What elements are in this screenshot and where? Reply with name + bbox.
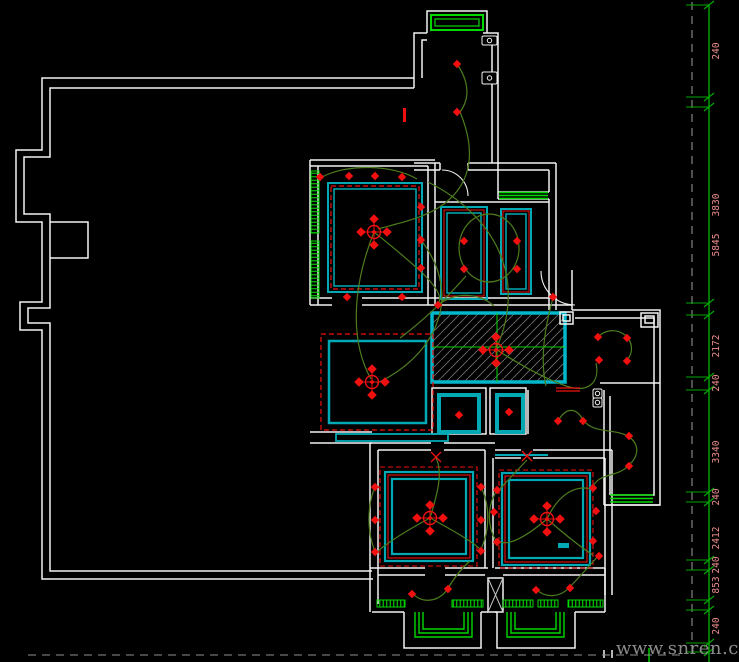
outlet-box <box>593 389 602 398</box>
dimension-label: 853 <box>711 576 722 593</box>
window-sills-rect <box>538 600 558 607</box>
dimension-label: 240 <box>711 42 722 59</box>
cad-floorplan-screenshot: 24038305845217224033402402412240853240 w… <box>0 0 739 662</box>
dimension-label: 240 <box>711 556 722 573</box>
window-sills-rect <box>452 600 483 607</box>
outlet-icon <box>593 389 602 398</box>
dimension-label: 2172 <box>711 335 722 358</box>
watermark-text: www.snren.com <box>616 638 739 659</box>
outlet-box <box>482 36 497 45</box>
outlet-box <box>593 398 602 407</box>
dimension-label: 2412 <box>711 527 722 550</box>
outlet-box <box>482 72 497 84</box>
window-sills-rect <box>311 171 319 233</box>
outlet-icon <box>482 72 497 84</box>
dimension-label: 240 <box>711 488 722 505</box>
outlet-icon <box>482 36 497 45</box>
dimension-label: 3340 <box>711 440 722 463</box>
ceiling-cyan-rect <box>558 543 569 548</box>
outlet-icon <box>593 398 602 407</box>
dimension-label: 5845 <box>711 234 722 257</box>
living-ceiling-hatch-layer <box>432 313 565 382</box>
window-sills-rect <box>311 241 319 298</box>
red-marks-rect <box>403 108 406 122</box>
dimension-label: 3830 <box>711 193 722 216</box>
dimension-label: 240 <box>711 617 722 634</box>
dimension-label: 240 <box>711 374 722 391</box>
window-sills-rect <box>503 600 533 607</box>
window-sills-rect <box>568 600 603 607</box>
floorplan-canvas: 24038305845217224033402402412240853240 <box>0 0 739 662</box>
window-sills-rect <box>377 600 405 607</box>
